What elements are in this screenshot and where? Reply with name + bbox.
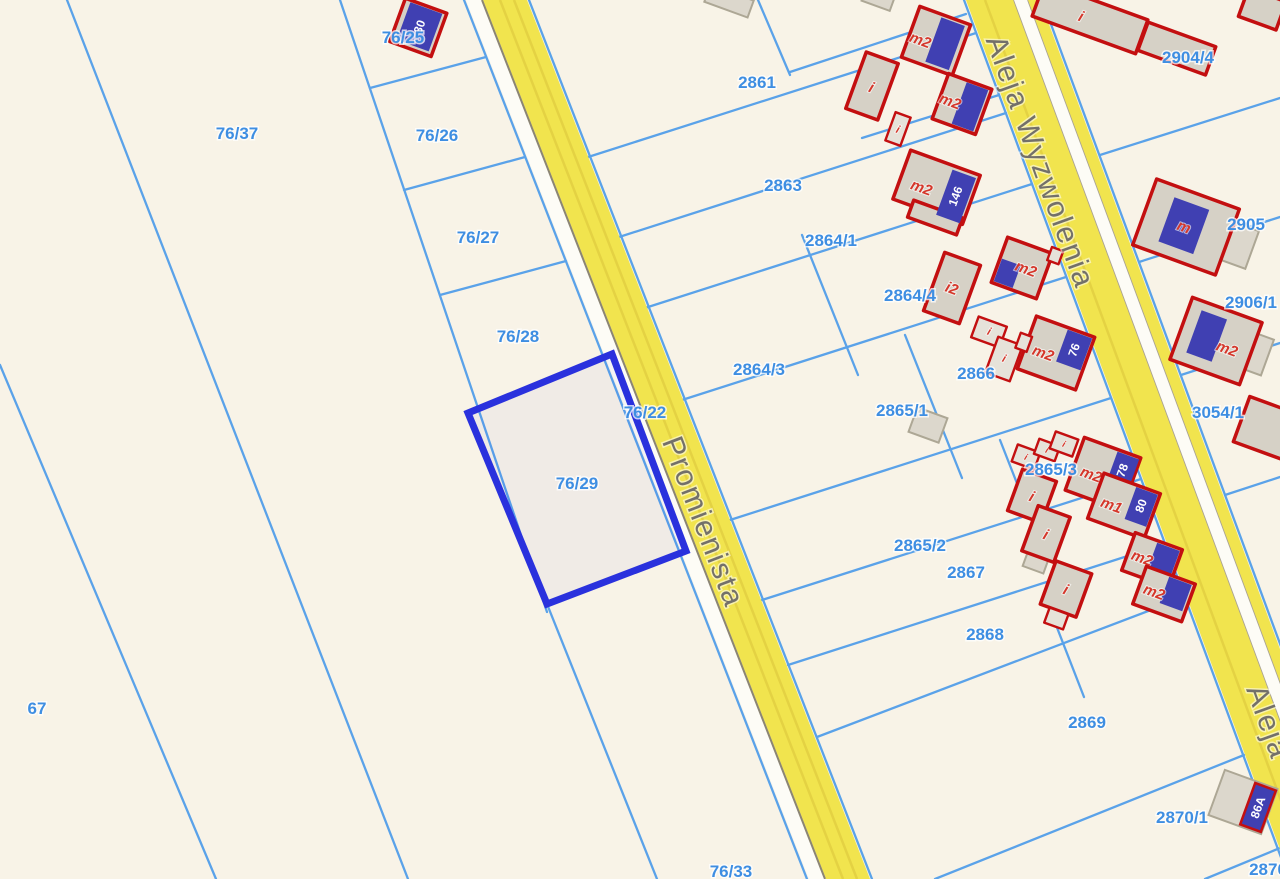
parcel-label[interactable]: 2870/1: [1156, 808, 1208, 827]
parcel-label[interactable]: 2870: [1249, 860, 1280, 879]
parcel-label[interactable]: 76/33: [710, 862, 753, 879]
parcel-label[interactable]: 76/25: [382, 28, 425, 47]
parcel-label[interactable]: 67: [28, 699, 47, 718]
parcel-label[interactable]: 76/22: [624, 403, 667, 422]
parcel-label[interactable]: 3054/1: [1192, 403, 1244, 422]
parcel-label[interactable]: 2866: [957, 364, 995, 383]
parcel-label[interactable]: 2906/1: [1225, 293, 1277, 312]
parcel-label[interactable]: 2863: [764, 176, 802, 195]
parcel-label[interactable]: 2865/3: [1025, 460, 1077, 479]
parcel-label[interactable]: 2904/4: [1162, 48, 1215, 67]
parcel-label[interactable]: 2865/1: [876, 401, 928, 420]
parcel-label[interactable]: 76/28: [497, 327, 540, 346]
parcel-label[interactable]: 2864/4: [884, 286, 937, 305]
parcel-label[interactable]: 2869: [1068, 713, 1106, 732]
parcel-label[interactable]: 76/37: [216, 124, 259, 143]
parcel-label[interactable]: 2867: [947, 563, 985, 582]
map-canvas[interactable]: 30 m2 i i m2 m2 146: [0, 0, 1280, 879]
parcel-label-selected[interactable]: 76/29: [556, 474, 599, 493]
parcel-label[interactable]: 2865/2: [894, 536, 946, 555]
parcel-label[interactable]: 2861: [738, 73, 776, 92]
parcel-label[interactable]: 2905: [1227, 215, 1265, 234]
parcel-label[interactable]: 2864/3: [733, 360, 785, 379]
parcel-label[interactable]: 2868: [966, 625, 1004, 644]
parcel-label[interactable]: 76/26: [416, 126, 459, 145]
parcel-label[interactable]: 76/27: [457, 228, 500, 247]
parcel-label[interactable]: 2864/1: [805, 231, 857, 250]
